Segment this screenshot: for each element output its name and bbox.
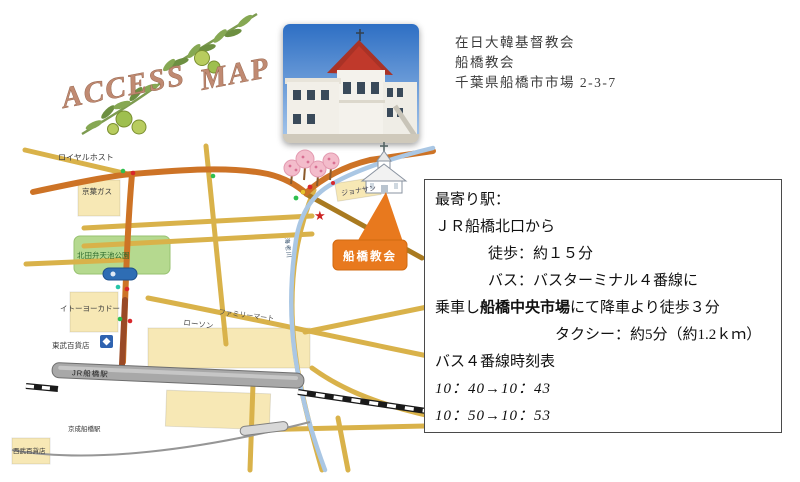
bus-cont-post: にて降車より徒歩３分 (570, 300, 720, 316)
station-front-building (148, 328, 310, 368)
org-name-line1: 在日大韓基督教会 (455, 33, 617, 53)
bus-cont-pre: 乗車し (435, 300, 480, 316)
nearest-station-label: 最寄り駅： (435, 187, 771, 214)
access-map-page: ACCESS MAP (0, 0, 800, 482)
cherry-blossom-trees (284, 150, 339, 186)
dark-red-road-segment (122, 300, 125, 365)
label-tobu: 東武百貨店 (52, 340, 90, 350)
label-keiyo-gas: 京葉ガス (82, 186, 112, 196)
jr-station-label: JR船橋駅 (72, 367, 109, 379)
keiyo-gas-building (78, 180, 120, 216)
street-map: 海老川 JR船橋駅 京成船橋駅 (0, 140, 440, 482)
church-callout: 船橋教会 (333, 192, 407, 270)
route-sign-capsule (103, 268, 137, 280)
church-photo-art (283, 24, 419, 143)
bus-line: バス：バスターミナル４番線に (435, 268, 771, 295)
label-seibu: 西武百貨店 (13, 446, 46, 455)
org-name-line2: 船橋教会 (455, 53, 617, 73)
walk-line: 徒歩：約１５分 (435, 241, 771, 268)
timetable-row-2: 10：50→10：53 (435, 403, 771, 430)
access-map-logo: ACCESS MAP (52, 6, 270, 148)
label-park: 北田弁天池公園 (77, 250, 130, 260)
star-marker: ★ (314, 208, 326, 223)
callout-label: 船橋教会 (343, 249, 397, 263)
river-label: 海老川 (283, 237, 293, 259)
tobu-logo-icon (100, 335, 113, 348)
org-address-line: 千葉県船橋市市場 2-3-7 (455, 73, 617, 93)
church-photo (283, 24, 419, 143)
timetable-row-1: 10：40→10：43 (435, 376, 771, 403)
timetable-title: バス４番線時刻表 (435, 349, 771, 376)
label-familymart: ファミリーマート (218, 308, 275, 323)
church-address-block: 在日大韓基督教会 船橋教会 千葉県船橋市市場 2-3-7 (455, 33, 617, 93)
bus-cont-market-name: 船橋中央市場 (480, 300, 570, 316)
label-ito-yokado: イトーヨーカドー (60, 304, 120, 313)
keisei-rail-line: 京成船橋駅 (12, 421, 310, 455)
label-royal-host: ロイヤルホスト (58, 153, 114, 162)
bus-continuation-line: 乗車し船橋中央市場にて降車より徒歩３分 (435, 295, 771, 322)
keisei-station-label: 京成船橋駅 (68, 424, 101, 433)
directions-info-box: 最寄り駅： ＪＲ船橋北口から 徒歩：約１５分 バス：バスターミナル４番線に 乗車… (424, 179, 782, 433)
taxi-line: タクシー：約5分（約1.2ｋｍ） (435, 322, 771, 349)
from-station-line: ＪＲ船橋北口から (435, 214, 771, 241)
